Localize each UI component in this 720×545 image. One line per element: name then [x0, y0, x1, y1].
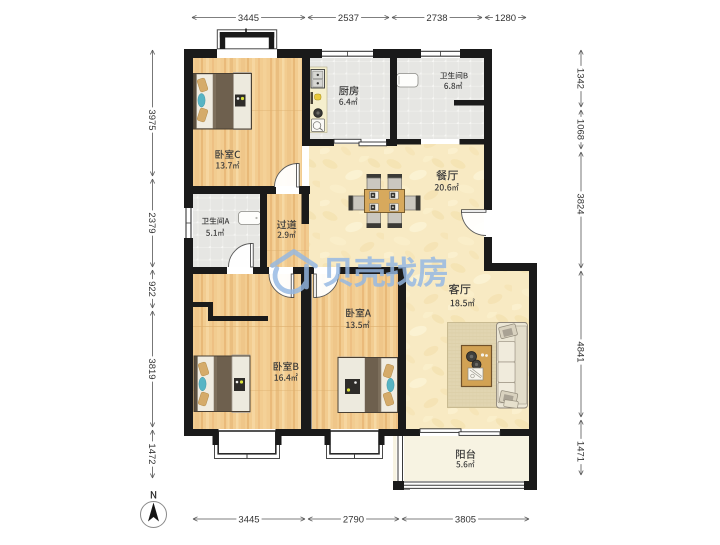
svg-text:1068: 1068	[575, 119, 586, 140]
svg-text:2379: 2379	[146, 212, 157, 233]
svg-text:2738: 2738	[426, 13, 447, 24]
svg-text:4841: 4841	[575, 341, 586, 362]
svg-text:2537: 2537	[338, 13, 359, 24]
svg-text:2790: 2790	[343, 514, 364, 525]
svg-text:3819: 3819	[146, 358, 157, 379]
svg-text:3975: 3975	[146, 109, 157, 130]
svg-text:3805: 3805	[455, 514, 476, 525]
svg-text:1472: 1472	[146, 443, 157, 464]
svg-text:3445: 3445	[238, 13, 259, 24]
svg-text:922: 922	[146, 281, 157, 297]
svg-text:1280: 1280	[495, 13, 516, 24]
svg-text:1342: 1342	[575, 68, 586, 89]
svg-text:3824: 3824	[575, 193, 586, 214]
svg-text:1471: 1471	[575, 441, 586, 462]
svg-text:3445: 3445	[238, 514, 259, 525]
